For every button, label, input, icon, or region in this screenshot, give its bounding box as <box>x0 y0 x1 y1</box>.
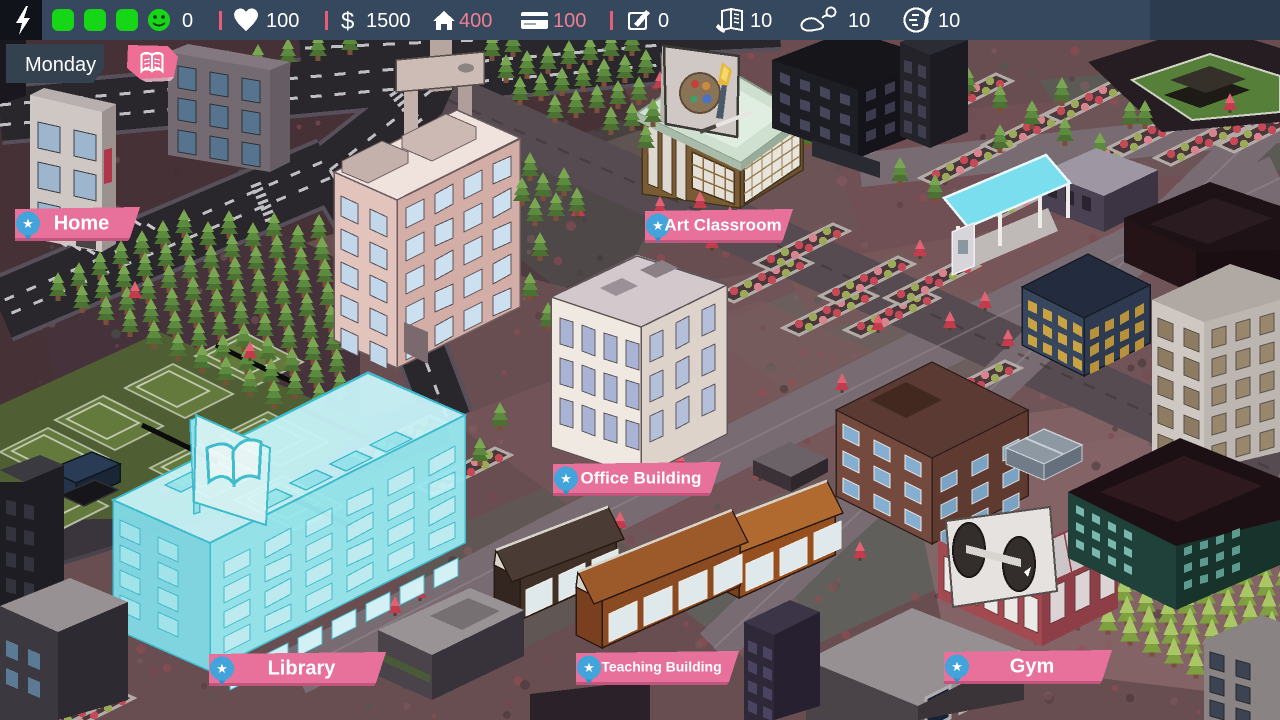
svg-text:10: 10 <box>750 10 772 32</box>
svg-text:10: 10 <box>938 10 960 32</box>
svg-text:★: ★ <box>560 471 572 486</box>
svg-text:★: ★ <box>22 216 34 231</box>
svg-text:Monday: Monday <box>25 54 96 76</box>
svg-text:100: 100 <box>553 10 586 32</box>
svg-text:★: ★ <box>951 659 963 674</box>
svg-text:★: ★ <box>583 660 595 675</box>
svg-text:Teaching Building: Teaching Building <box>601 659 721 675</box>
svg-text:★: ★ <box>652 218 664 233</box>
svg-text:Home: Home <box>54 213 110 235</box>
svg-text:Gym: Gym <box>1010 656 1054 678</box>
svg-text:Art Classroom: Art Classroom <box>664 216 781 235</box>
svg-text:400: 400 <box>459 10 492 32</box>
svg-text:0: 0 <box>182 10 193 32</box>
svg-text:0: 0 <box>658 10 669 32</box>
svg-text:1500: 1500 <box>366 10 411 32</box>
svg-text:10: 10 <box>848 10 870 32</box>
svg-text:$: $ <box>341 8 354 35</box>
svg-text:★: ★ <box>216 661 228 676</box>
svg-text:Office Building: Office Building <box>581 469 702 488</box>
svg-text:Library: Library <box>268 658 337 680</box>
svg-text:100: 100 <box>266 10 299 32</box>
